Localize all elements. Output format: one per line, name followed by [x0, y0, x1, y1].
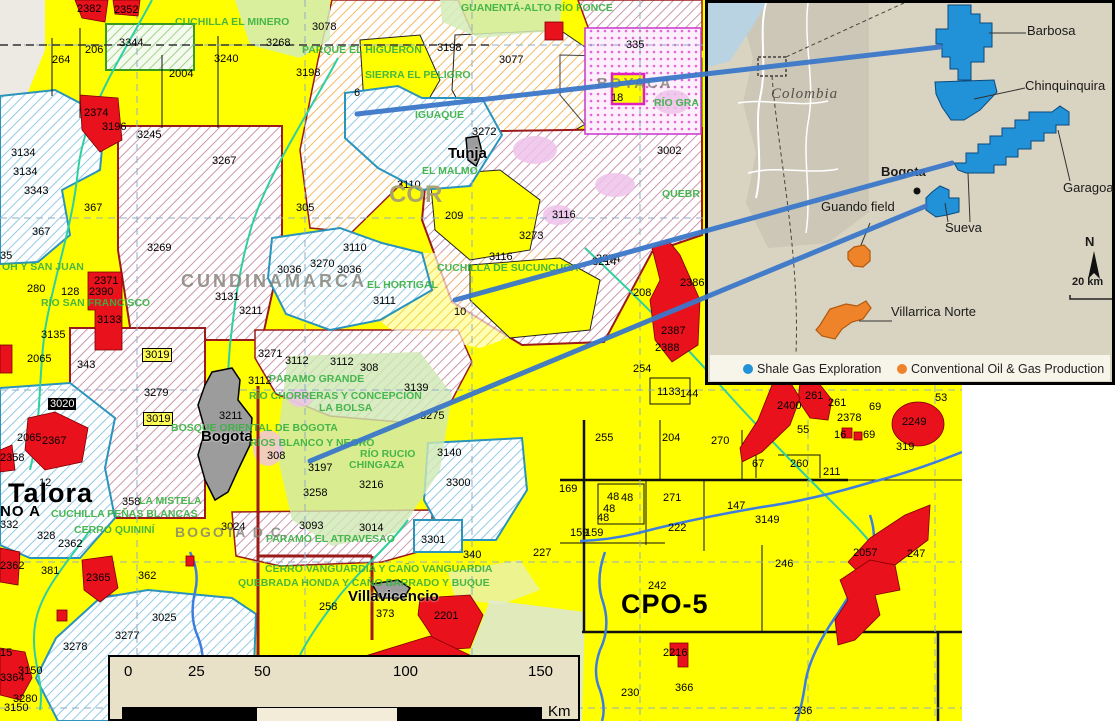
scale-bar-strip: [122, 707, 542, 721]
scale-segment-black: [397, 708, 541, 721]
scale-segment-black: [123, 708, 257, 721]
scale-tick-label: 50: [254, 663, 271, 680]
scale-segment-white: [257, 708, 397, 721]
scale-tick-label: 100: [393, 663, 418, 680]
inset-locator-map: [705, 0, 1115, 385]
scale-bar: 02550100150 Km: [108, 655, 580, 721]
scale-tick-label: 25: [188, 663, 205, 680]
map-figure: 2382235233442062642004324032683078319831…: [0, 0, 1115, 721]
scale-tick-label: 0: [124, 663, 132, 680]
scale-tick-label: 150: [528, 663, 553, 680]
inset-graphics: [708, 3, 1112, 382]
scale-unit-label: Km: [548, 703, 571, 720]
